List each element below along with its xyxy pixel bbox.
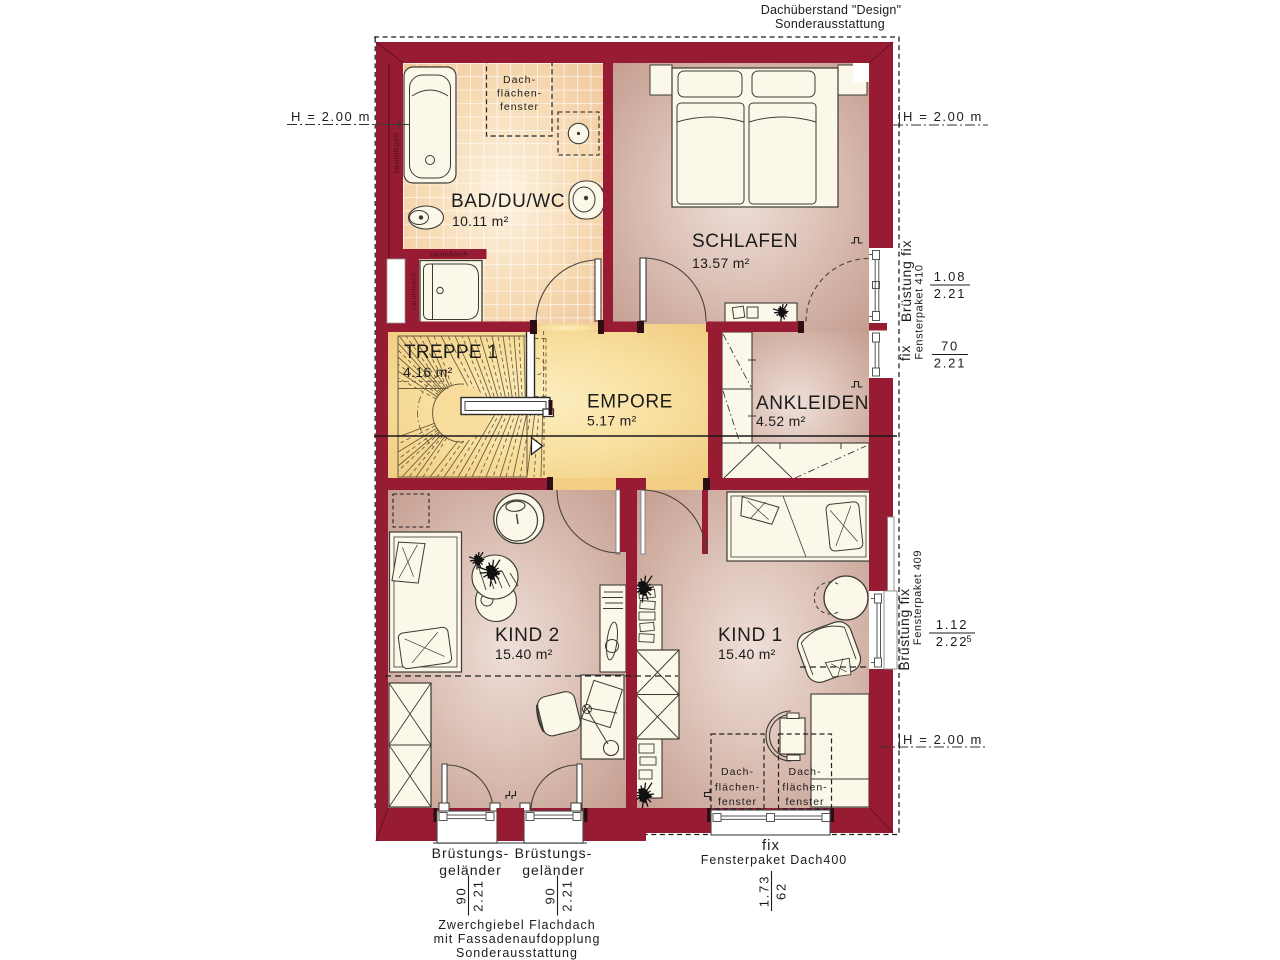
- svg-text:Zwerchgiebel Flachdach: Zwerchgiebel Flachdach: [438, 918, 596, 932]
- svg-text:geländer: geländer: [439, 862, 502, 878]
- svg-text:raumhoch: raumhoch: [409, 272, 418, 310]
- svg-text:4.52 m²: 4.52 m²: [756, 413, 806, 429]
- svg-text:raumhoch: raumhoch: [430, 250, 468, 259]
- svg-text:Dachüberstand "Design": Dachüberstand "Design": [761, 3, 901, 17]
- svg-text:raumhoch: raumhoch: [392, 132, 401, 173]
- svg-text:TREPPE 1: TREPPE 1: [404, 342, 498, 363]
- svg-text:H = 2.00 m: H = 2.00 m: [903, 732, 983, 747]
- svg-text:2.21: 2.21: [471, 879, 486, 912]
- svg-text:2.21: 2.21: [560, 879, 575, 912]
- svg-text:10.11 m²: 10.11 m²: [452, 213, 509, 229]
- svg-text:1.73: 1.73: [757, 875, 772, 908]
- svg-text:5.17 m²: 5.17 m²: [587, 413, 637, 429]
- svg-text:flächen-: flächen-: [715, 782, 760, 794]
- svg-text:Sonderausstattung: Sonderausstattung: [775, 17, 885, 31]
- svg-text:Fensterpaket 410: Fensterpaket 410: [914, 264, 926, 359]
- svg-text:Fensterpaket Dach400: Fensterpaket Dach400: [701, 853, 847, 867]
- svg-text:90: 90: [543, 886, 558, 904]
- svg-text:BAD/DU/WC: BAD/DU/WC: [451, 191, 565, 212]
- svg-text:Sonderausstattung: Sonderausstattung: [456, 946, 578, 960]
- svg-text:15.40 m²: 15.40 m²: [495, 646, 553, 662]
- svg-text:62: 62: [774, 882, 789, 900]
- svg-text:70: 70: [941, 339, 959, 354]
- svg-text:Dach-: Dach-: [788, 766, 821, 778]
- svg-text:5: 5: [966, 634, 971, 644]
- svg-text:H = 2.00 m: H = 2.00 m: [291, 109, 371, 124]
- svg-text:Dach-: Dach-: [503, 74, 536, 86]
- svg-text:Fensterpaket 409: Fensterpaket 409: [912, 550, 924, 645]
- svg-text:SCHLAFEN: SCHLAFEN: [692, 231, 798, 252]
- svg-text:fenster: fenster: [718, 796, 757, 808]
- svg-text:Brüstungs-: Brüstungs-: [432, 845, 510, 861]
- svg-text:KIND 1: KIND 1: [718, 625, 783, 646]
- svg-text:fenster: fenster: [500, 101, 539, 113]
- svg-text:ANKLEIDEN: ANKLEIDEN: [756, 393, 869, 414]
- svg-text:geländer: geländer: [522, 862, 585, 878]
- svg-text:2.22: 2.22: [936, 634, 969, 649]
- svg-text:1.12: 1.12: [936, 617, 969, 632]
- svg-text:1.08: 1.08: [934, 269, 967, 284]
- svg-text:H = 2.00 m: H = 2.00 m: [903, 109, 983, 124]
- svg-text:mit Fassadenaufdopplung: mit Fassadenaufdopplung: [434, 932, 601, 946]
- svg-text:Brüstung fix: Brüstung fix: [898, 240, 914, 322]
- svg-text:KIND 2: KIND 2: [495, 625, 560, 646]
- svg-text:flächen-: flächen-: [497, 88, 542, 100]
- svg-text:2.21: 2.21: [934, 356, 967, 371]
- svg-text:13.57 m²: 13.57 m²: [692, 255, 750, 271]
- svg-text:fenster: fenster: [785, 796, 824, 808]
- svg-text:15.40 m²: 15.40 m²: [718, 646, 776, 662]
- svg-text:Brüstungs-: Brüstungs-: [515, 845, 593, 861]
- svg-text:fix: fix: [897, 345, 913, 361]
- svg-text:Brüstung fix: Brüstung fix: [896, 588, 912, 670]
- svg-text:90: 90: [454, 886, 469, 904]
- svg-text:fix: fix: [762, 837, 780, 854]
- svg-text:flächen-: flächen-: [782, 782, 827, 794]
- svg-text:EMPORE: EMPORE: [587, 392, 673, 413]
- svg-text:Dach-: Dach-: [721, 766, 754, 778]
- svg-text:2.21: 2.21: [934, 286, 967, 301]
- svg-text:4.16 m²: 4.16 m²: [403, 364, 453, 380]
